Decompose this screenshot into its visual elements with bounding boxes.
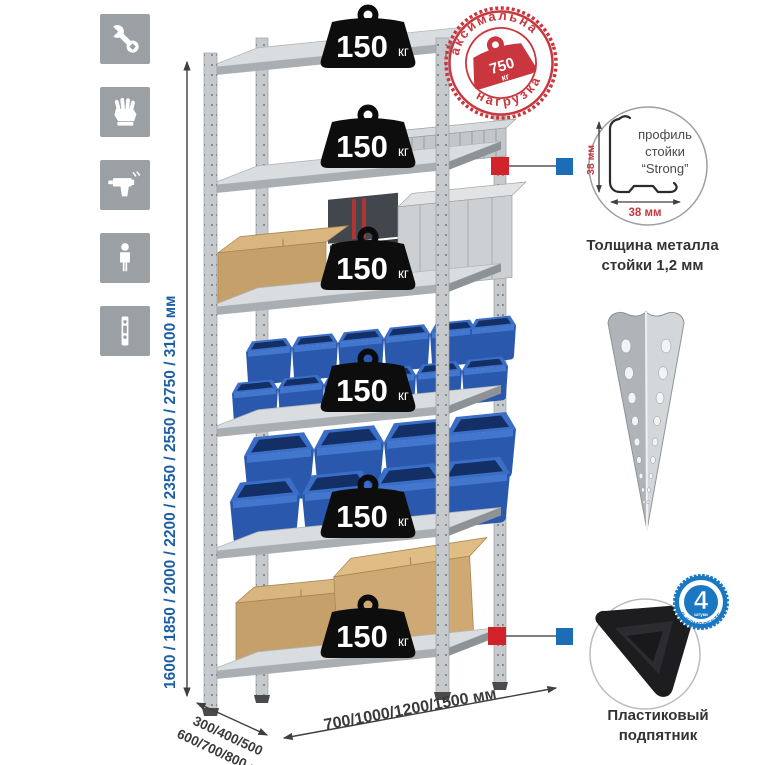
profile-label-1: профиль [638, 127, 692, 142]
profile-dim-horizontal: 38 мм [628, 207, 661, 219]
width-dimension-label: 700/1000/1200/1500 мм [323, 685, 498, 734]
load-unit: кг [398, 388, 409, 403]
post-front-left [204, 53, 217, 710]
profile-label-2: стойки [645, 144, 685, 159]
shelf-load-badge-3: 150 кг [312, 224, 424, 294]
load-unit: кг [398, 266, 409, 281]
post-front-right [436, 38, 449, 694]
callout-profile [491, 157, 573, 175]
height-dimension: 1600 / 1850 / 2000 / 2200 / 2350 / 2550 … [162, 62, 187, 696]
callout-marker-red [488, 627, 506, 645]
kit-badge-small-text: штуки [694, 612, 708, 617]
depth-dimension: 300/400/500 600/700/800 мм [175, 703, 271, 765]
load-value: 150 [336, 29, 388, 64]
load-value: 150 [336, 251, 388, 286]
load-unit: кг [398, 144, 409, 159]
corner-post-image [588, 298, 708, 548]
shelf-load-badge-4: 150 кг [312, 346, 424, 416]
kit-badge-value: 4 [694, 585, 709, 615]
shelf-load-badge-2: 150 кг [312, 102, 424, 172]
callout-foot [488, 627, 573, 645]
profile-detail-circle: 38 мм 38 мм профиль стойки “Strong” [568, 86, 728, 246]
load-value: 150 [336, 499, 388, 534]
load-unit: кг [398, 634, 409, 649]
height-dimension-label: 1600 / 1850 / 2000 / 2200 / 2350 / 2550 … [162, 295, 179, 689]
load-value: 150 [336, 373, 388, 408]
load-value: 150 [336, 129, 388, 164]
callout-marker-blue [556, 628, 573, 645]
callout-marker-red [491, 157, 509, 175]
shelf-load-badge-6: 150 кг [312, 592, 424, 662]
profile-label-3: “Strong” [642, 161, 689, 176]
load-value: 150 [336, 619, 388, 654]
shelf-load-badge-1: 150 кг [312, 2, 424, 72]
product-infographic: 1600 / 1850 / 2000 / 2200 / 2350 / 2550 … [0, 0, 765, 765]
profile-dim-vertical: 38 мм [585, 145, 597, 175]
load-unit: кг [398, 514, 409, 529]
width-dimension: 700/1000/1200/1500 мм [284, 685, 556, 738]
kit-count-badge: в комплекте 4 штуки [670, 571, 732, 633]
load-unit: кг [398, 44, 409, 59]
shelf-load-badge-5: 150 кг [312, 472, 424, 542]
